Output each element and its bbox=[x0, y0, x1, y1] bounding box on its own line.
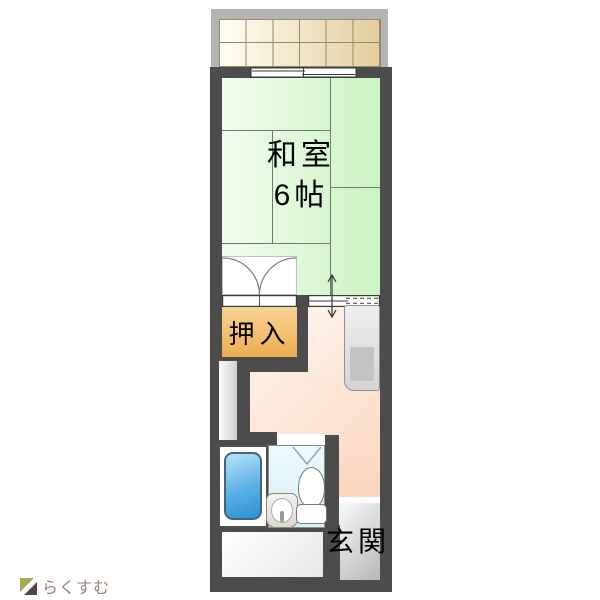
sliding-window-symbol bbox=[250, 67, 357, 78]
toilet-tank bbox=[296, 504, 327, 524]
oshiire-label: 押入 bbox=[222, 307, 297, 357]
bathtub bbox=[224, 452, 262, 520]
toilet-bowl bbox=[298, 467, 325, 508]
rakusumu-logo-text: らくすむ bbox=[42, 574, 110, 598]
pipe-space bbox=[219, 361, 237, 440]
washitsu-name: 和室 bbox=[222, 136, 380, 176]
wall-segment bbox=[357, 67, 392, 78]
closet-double-door-symbol bbox=[222, 256, 297, 295]
washbasin-faucet bbox=[280, 511, 284, 522]
balcony-tile-grid bbox=[219, 19, 381, 67]
kitchen-entrance-threshold bbox=[339, 497, 380, 503]
entrance-hallway bbox=[222, 532, 323, 577]
wall-segment bbox=[210, 67, 250, 78]
bathroom-door-opening bbox=[277, 434, 325, 445]
kitchen-sink bbox=[350, 347, 374, 381]
floorplan-canvas: 和室 6帖 押入 玄関 らくすむ bbox=[0, 0, 600, 600]
washitsu-size: 6帖 bbox=[222, 176, 380, 216]
closet-threshold-symbol bbox=[222, 295, 297, 307]
genkan-label: 玄関 bbox=[326, 520, 390, 560]
rakusumu-logo-icon bbox=[20, 578, 37, 595]
rakusumu-logo: らくすむ bbox=[20, 574, 110, 598]
bathroom-door-symbol bbox=[291, 446, 323, 466]
washitsu-room-label: 和室 6帖 bbox=[222, 136, 380, 216]
passage-arrow bbox=[324, 274, 340, 320]
kitchen-dining-room bbox=[339, 447, 380, 497]
wall-segment bbox=[380, 67, 392, 592]
